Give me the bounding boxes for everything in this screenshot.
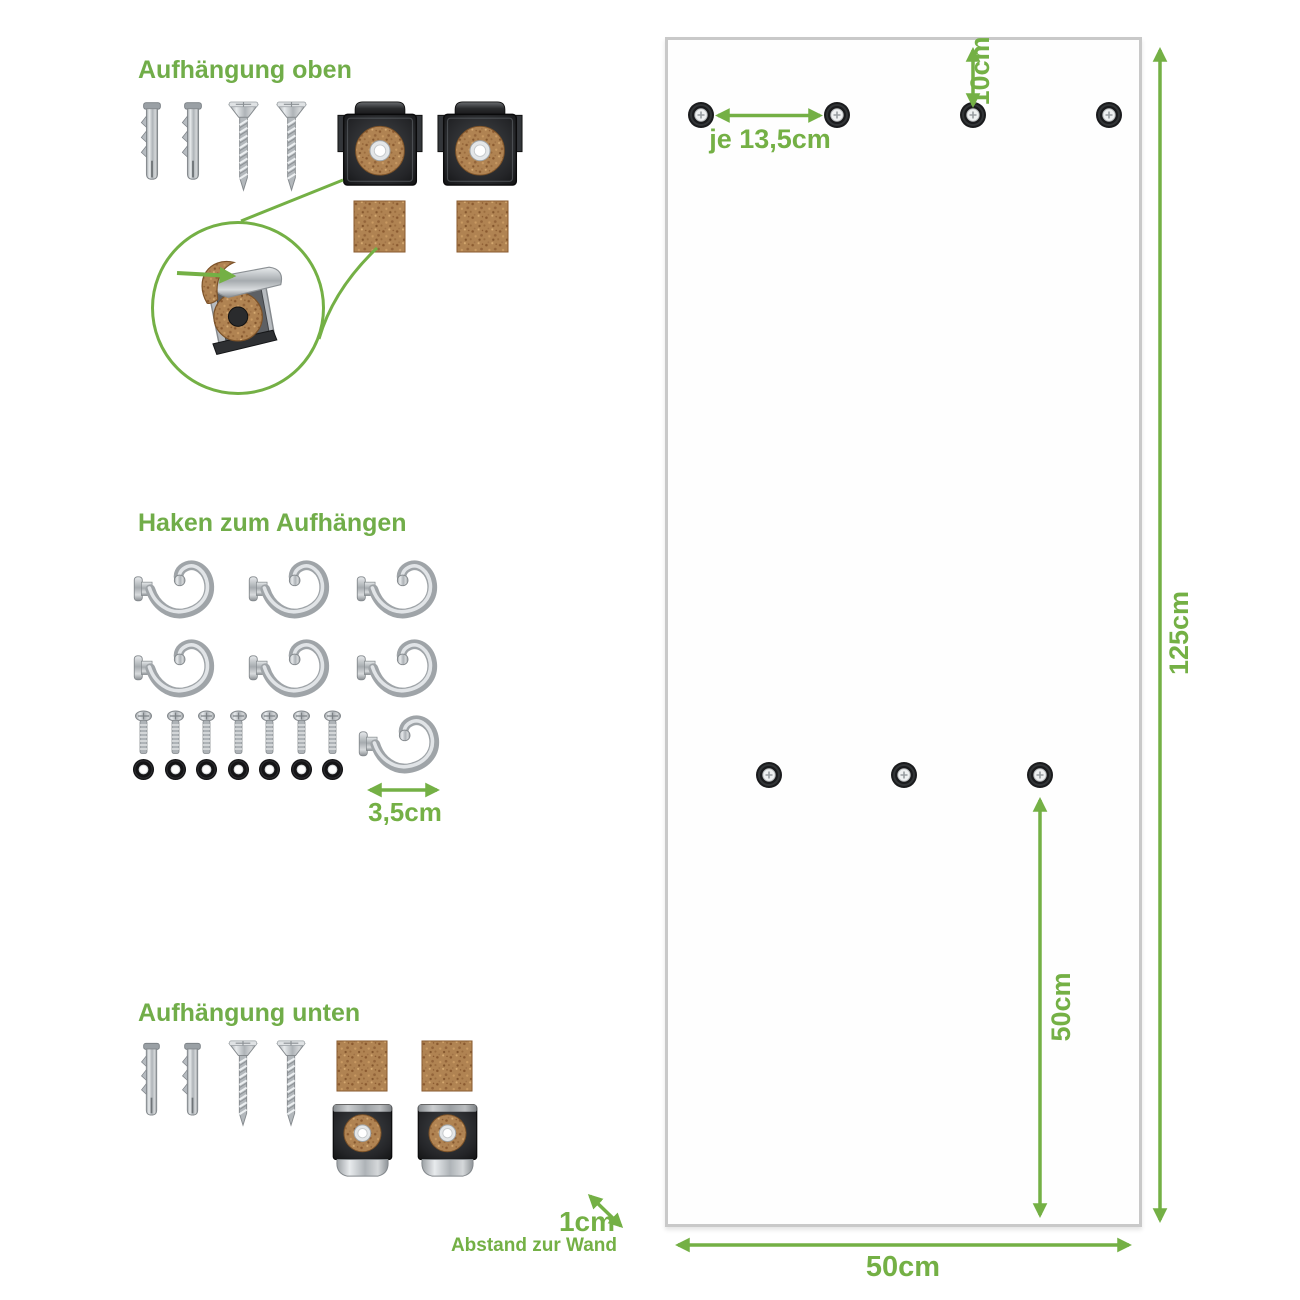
wall-plug-icon [180,1042,205,1122]
mounting-hole-icon [755,761,783,789]
mirror-clip-bottom-icon [331,1103,394,1179]
bolt-icon [167,710,184,758]
wall-distance-value-label: 1cm [541,1208,615,1236]
cork-pad-icon [352,200,407,253]
panel-height-label: 125cm [1165,591,1193,675]
top-offset-label: 10cm [966,36,994,106]
cork-pad-icon [421,1040,473,1092]
washer-icon [164,758,187,781]
bolt-icon [261,710,278,758]
screw-icon [227,1040,259,1128]
bolt-icon [230,710,247,758]
hook-width-label: 3,5cm [363,799,447,825]
cup-hook-icon [355,630,445,703]
mounting-hole-icon [1095,101,1123,129]
washer-icon [132,758,155,781]
bolt-icon [198,710,215,758]
mounting-hole-icon [1026,761,1054,789]
glass-panel-outline [665,37,1142,1227]
cup-hook-icon [247,551,337,624]
bolt-icon [324,710,341,758]
section-title-top-mount: Aufhängung oben [138,56,352,85]
bolt-icon [293,710,310,758]
washer-icon [227,758,250,781]
cup-hook-icon [132,630,222,703]
cup-hook-icon [132,551,222,624]
panel-width-label: 50cm [833,1253,973,1282]
detail-connector-line [319,248,377,339]
screw-icon [275,101,308,193]
mounting-instruction-diagram: Aufhängung oben Haken zum Aufhängen 3,5c… [0,0,1300,1300]
screw-icon [275,1040,307,1128]
section-title-bottom-mount: Aufhängung unten [138,999,360,1028]
cup-hook-icon [247,630,337,703]
mirror-clip-top-icon [437,100,523,188]
cup-hook-icon [355,551,445,624]
screw-icon [227,101,260,193]
washer-icon [290,758,313,781]
wall-plug-icon [139,100,165,188]
clip-cork-detail-icon [178,243,304,369]
mirror-clip-bottom-icon [416,1103,479,1179]
cork-pad-icon [456,200,509,253]
washer-icon [258,758,281,781]
bolt-icon [135,710,152,758]
mirror-clip-top-icon [337,100,423,188]
wall-plug-icon [139,1042,164,1122]
washer-icon [195,758,218,781]
section-title-hooks: Haken zum Aufhängen [138,509,407,538]
wall-plug-icon [180,100,206,188]
wall-distance-caption-label: Abstand zur Wand [448,1236,620,1255]
mounting-hole-icon [890,761,918,789]
top-hole-spacing-label: je 13,5cm [690,126,850,153]
cup-hook-icon [357,706,447,779]
washer-icon [321,758,344,781]
mid-to-bottom-label: 50cm [1047,972,1075,1042]
cork-pad-icon [336,1040,388,1092]
